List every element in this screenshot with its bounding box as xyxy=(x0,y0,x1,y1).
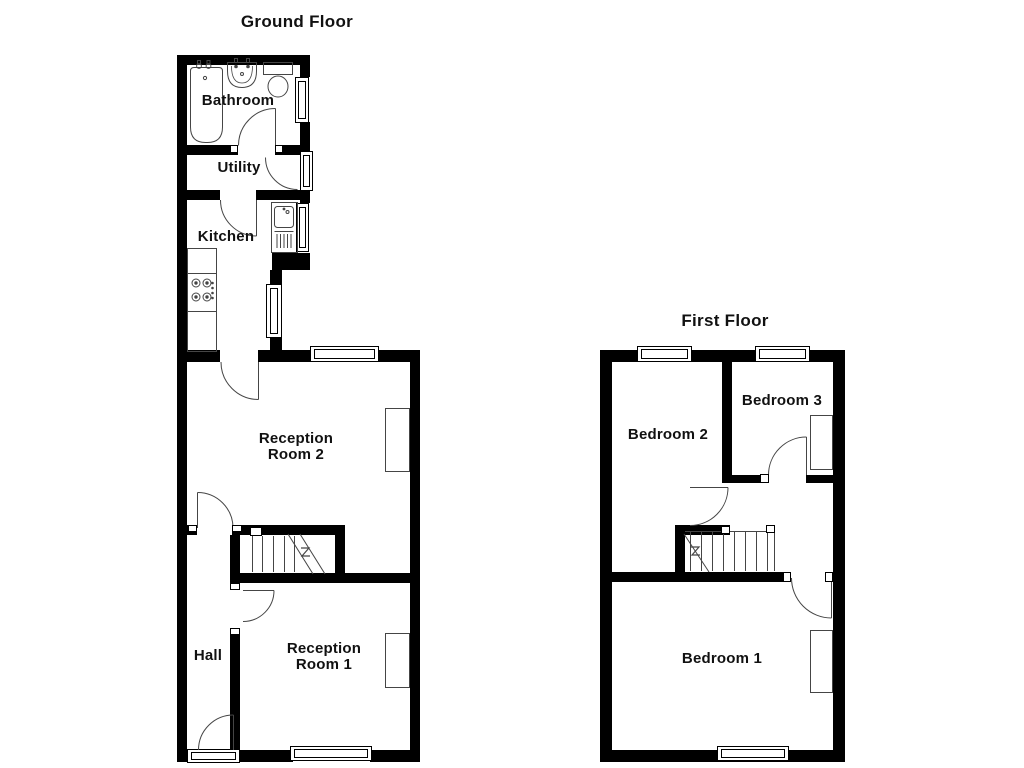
reception1-window xyxy=(291,747,372,761)
chimney-reception2 xyxy=(386,409,410,472)
front-door-frame xyxy=(188,750,240,763)
room-label-bedroom3: Bedroom 3 xyxy=(742,393,822,409)
bathroom-window xyxy=(296,78,309,123)
hall-reception2-door xyxy=(198,493,234,529)
bedroom2-door xyxy=(690,488,728,526)
utility-back-door xyxy=(301,152,313,191)
reception2-window xyxy=(311,347,379,362)
front-door xyxy=(199,715,234,750)
room-label-bathroom: Bathroom xyxy=(202,93,274,109)
bedroom1-door xyxy=(792,578,832,618)
utility-door-swing xyxy=(266,158,298,190)
room-label-bedroom2: Bedroom 2 xyxy=(628,427,708,443)
reception2-door xyxy=(221,362,259,400)
kitchen-sink-unit xyxy=(272,203,298,253)
first-floor-title: First Floor xyxy=(681,313,768,329)
floorplan: Ground Floor Bathroom Utility Kitchen Re… xyxy=(0,0,1024,768)
chimney-reception1 xyxy=(386,634,410,688)
room-label-reception1: Reception Room 1 xyxy=(274,641,374,673)
room-label-hall: Hall xyxy=(194,648,222,664)
kitchen-counter xyxy=(188,249,217,352)
stairs-first xyxy=(684,532,775,573)
side-window xyxy=(267,285,282,338)
ground-floor-title: Ground Floor xyxy=(241,14,353,30)
bedroom3-window xyxy=(756,347,810,362)
room-label-utility: Utility xyxy=(217,160,260,176)
stairs-ground xyxy=(253,534,326,574)
room-label-bedroom1: Bedroom 1 xyxy=(682,651,762,667)
bedroom2-window xyxy=(638,347,692,362)
plan-detail-layer xyxy=(0,0,1024,768)
room-label-kitchen: Kitchen xyxy=(198,229,254,245)
kitchen-window xyxy=(297,204,309,252)
bathroom-door xyxy=(239,109,276,146)
hob xyxy=(188,274,217,312)
chimney-bedroom3 xyxy=(811,416,833,470)
bedroom1-window xyxy=(718,747,789,761)
basin xyxy=(228,59,257,88)
bedroom3-door xyxy=(769,437,807,475)
reception1-door xyxy=(243,591,274,622)
chimney-bedroom1 xyxy=(811,631,833,693)
room-label-reception2: Reception Room 2 xyxy=(246,431,346,463)
jamb-markers xyxy=(189,146,833,635)
